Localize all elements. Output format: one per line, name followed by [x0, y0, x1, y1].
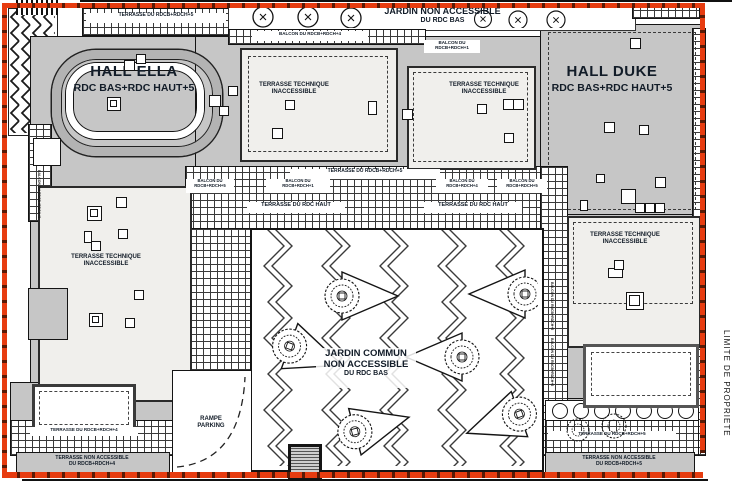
property-line-bottom — [5, 472, 703, 478]
roof-vent — [655, 177, 666, 188]
balcony-line2: RDCB+RDCH+5 — [497, 184, 547, 189]
balcony-right-b-label: BALCON DU RDCB+RDCH+5 — [497, 179, 547, 193]
roof-vent — [118, 229, 128, 239]
bottom-left-terrace-label: TERRASSE DU RDCB+RDCH+4 — [30, 427, 138, 436]
garden-central-line3: DU RDC BAS — [316, 370, 416, 378]
edge-balcony-label: BALCON DU RDCB+RDCH+5 — [31, 170, 41, 220]
garden-central-label: JARDIN COMMUN NON ACCESSIBLE DU RDC BAS — [316, 348, 416, 388]
roof-vent — [124, 60, 135, 71]
property-line-label: LIMITE DE PROPRIETE — [705, 330, 731, 480]
roof-vent — [91, 241, 101, 251]
drawing-frame-bottom — [22, 479, 708, 481]
terrace-rdc-haut-right-label: TERRASSE DU RDC HAUT — [424, 202, 522, 213]
balcony-right-a-label: BALCON DU RDCB+RDCH+4 — [436, 179, 488, 193]
hall-ella-levels: RDC BAS+RDC HAUT+5 — [48, 82, 220, 94]
terrace-step — [28, 288, 68, 340]
technical-terrace-4-label: TERRASSE TECHNIQUE INACCESSIBLE — [573, 232, 677, 250]
top-balcony-label: BALCON DU RDCB+RDCH+4 — [252, 31, 368, 41]
roof-vent — [228, 86, 238, 96]
roof-vent — [285, 100, 295, 110]
na-right-line2: DU RDCB+RDCH+5 — [549, 462, 689, 468]
garden-central-line2: NON ACCESSIBLE — [316, 359, 416, 370]
roof-vent — [134, 290, 144, 300]
bottom-right-building — [583, 344, 699, 408]
roof-vent — [477, 104, 487, 114]
parking-ramp-label: RAMPE PARKING — [177, 416, 245, 434]
balcony-line2: RDCB+RDCH+5 — [186, 184, 234, 189]
upper-right-balcony-label: BALCON DU RDCB+RDCH+1 — [424, 40, 480, 53]
tt-line2: INACCESSIBLE — [432, 89, 536, 96]
non-accessible-terrace-left-label: TERRASSE NON ACCESSIBLE DU RDCB+RDCH+4 — [20, 456, 164, 470]
roof-vent — [89, 313, 103, 327]
balcony-center-label: BALCON DU RDCB+RDCH+1 — [266, 179, 330, 193]
balcony-line2: RDCB+RDCH+4 — [436, 184, 488, 189]
ramp-line2: PARKING — [177, 423, 245, 430]
balcony-line2: RDCB+RDCH+1 — [266, 184, 330, 189]
roof-edge-dashed-4 — [548, 32, 696, 210]
garden-central-line1: JARDIN COMMUN — [316, 348, 416, 359]
roof-vent — [368, 101, 377, 115]
roof-vent — [136, 54, 146, 64]
tt-line2: INACCESSIBLE — [242, 89, 346, 96]
roof-vent — [513, 99, 524, 110]
roof-vent — [402, 109, 413, 120]
roof-vent — [504, 133, 514, 143]
tt-line1: TERRASSE TECHNIQUE — [54, 254, 158, 261]
balcony-left-label: BALCON DU RDCB+RDCH+5 — [186, 179, 234, 193]
tt-line1: TERRASSE TECHNIQUE — [573, 232, 677, 239]
roof-vent — [107, 97, 121, 111]
roof-edge-dashed-1 — [248, 56, 388, 152]
roof-vent — [645, 203, 655, 213]
bottom-right-building-roofline — [591, 352, 691, 396]
tt-line2: INACCESSIBLE — [54, 261, 158, 268]
property-line-top — [5, 3, 703, 8]
roof-vent — [87, 206, 102, 221]
hall-duke-title: HALL DUKE — [530, 63, 694, 80]
roof-vent — [639, 125, 649, 135]
technical-terrace-1-label: TERRASSE TECHNIQUE INACCESSIBLE — [242, 82, 346, 100]
garden-top-line2: DU RDC BAS — [365, 17, 520, 25]
roof-vent — [635, 203, 645, 213]
mid-terrace-label: TERRASSE DU RDCB+RDCH+5 — [290, 169, 440, 179]
roof-vent — [272, 128, 283, 139]
non-accessible-terrace-right-label: TERRASSE NON ACCESSIBLE DU RDCB+RDCH+5 — [549, 456, 689, 470]
technical-terrace-2-label: TERRASSE TECHNIQUE INACCESSIBLE — [432, 82, 536, 100]
terrace-rdc-haut-left-label: TERRASSE DU RDC HAUT — [247, 202, 345, 213]
shrub-plan-symbol — [600, 412, 628, 440]
roof-vent — [596, 174, 605, 183]
roof-vent — [125, 318, 135, 328]
roof-vent — [630, 38, 641, 49]
hall-duke-levels: RDC BAS+RDC HAUT+5 — [530, 82, 694, 94]
tt-line1: TERRASSE TECHNIQUE — [432, 82, 536, 89]
roof-vent — [219, 106, 229, 116]
roof-vent — [116, 197, 127, 208]
edge-balcony-label: BALCON DU RDCB+RDCH+5 — [544, 282, 554, 338]
ramp-line1: RAMPE — [177, 416, 245, 423]
bottom-left-building-roofline — [39, 391, 129, 425]
roof-vent — [621, 189, 636, 204]
shrub-plan-symbol — [565, 417, 591, 443]
balcony-line2: RDCB+RDCH+1 — [424, 45, 480, 50]
property-line-left — [2, 3, 7, 478]
roof-vent — [626, 292, 644, 310]
edge-balcony-label: BALCON DU RDCB+RDCH+5 — [544, 338, 554, 394]
tt-line1: TERRASSE TECHNIQUE — [242, 82, 346, 89]
roof-vent — [580, 200, 588, 211]
roof-vent — [614, 260, 624, 270]
technical-terrace-3-label: TERRASSE TECHNIQUE INACCESSIBLE — [54, 254, 158, 272]
roof-vent — [604, 122, 615, 133]
top-terrace-label: TERRASSE DU RDCB+RDCH+5 — [86, 13, 226, 23]
tt-line2: INACCESSIBLE — [573, 239, 677, 246]
roof-vent — [655, 203, 665, 213]
site-plan-canvas: TERRASSE DU RDCB+RDCH+5 JARDIN NON ACCES… — [0, 0, 732, 483]
na-left-line2: DU RDCB+RDCH+4 — [20, 462, 164, 468]
drawing-frame-top — [80, 0, 732, 2]
left-edge-block — [33, 138, 61, 166]
